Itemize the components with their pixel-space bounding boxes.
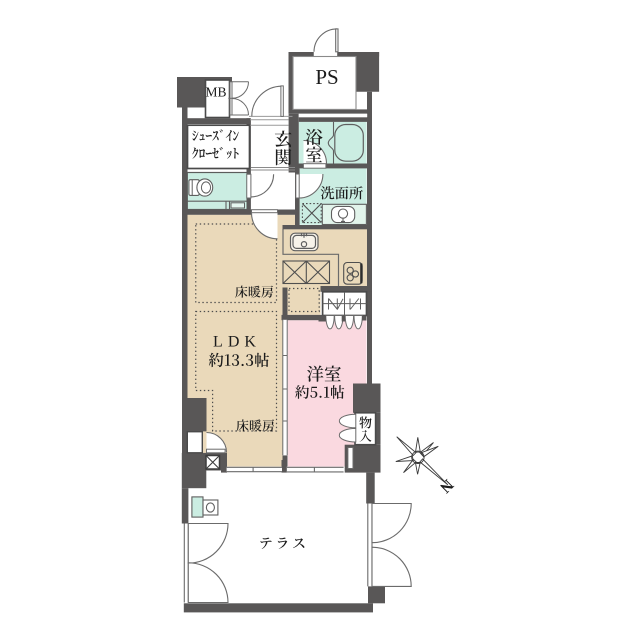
svg-text:MB: MB [205,85,226,100]
svg-text:PS: PS [315,65,338,89]
svg-text:LDK: LDK [213,334,261,351]
